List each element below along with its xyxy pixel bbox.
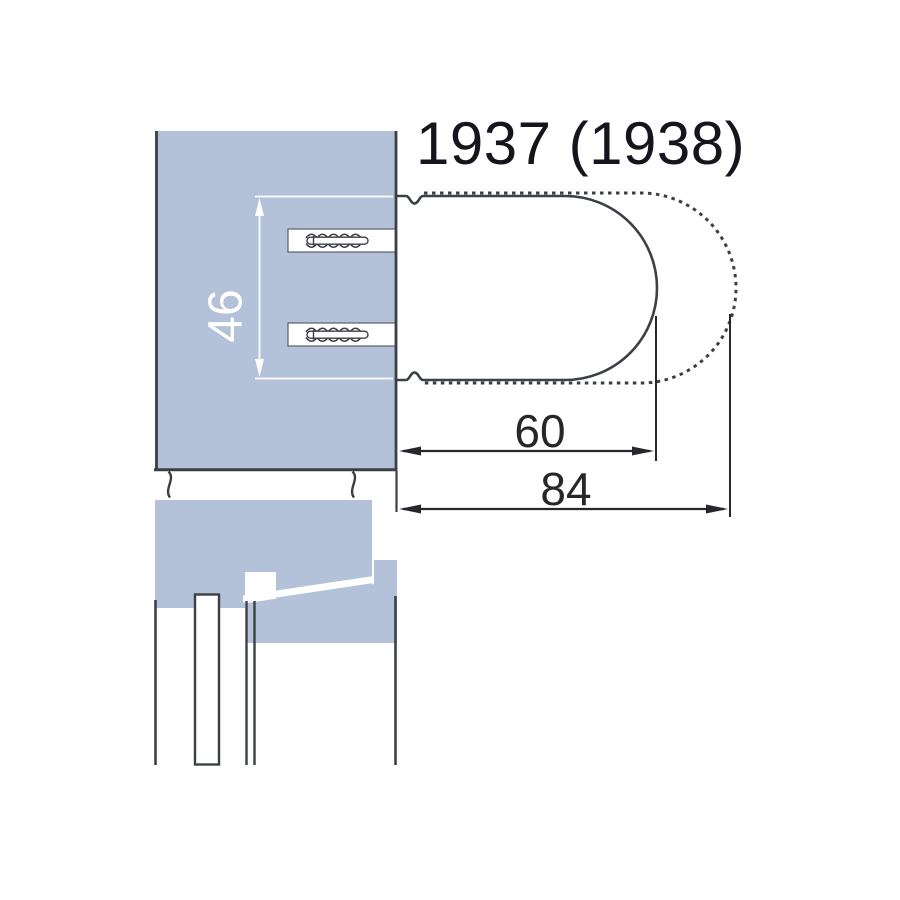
anchor-screw xyxy=(307,331,368,338)
technical-drawing-page: 1937 (1938) 60 84 46 xyxy=(0,0,900,900)
dimension-46-label-wrap: 46 xyxy=(167,256,287,376)
dimension-84-label: 84 xyxy=(540,466,591,512)
section-slot xyxy=(195,595,219,765)
dimension-60-label: 60 xyxy=(514,408,565,454)
wall-anchor-bottom xyxy=(288,323,396,346)
arrow-right-icon xyxy=(706,505,728,514)
handle-solid-outline xyxy=(397,196,658,380)
arrow-left-icon xyxy=(399,505,421,514)
break-marks xyxy=(168,472,355,498)
anchor-screw xyxy=(307,237,368,244)
product-model-title: 1937 (1938) xyxy=(416,112,745,175)
break-mark-right xyxy=(352,472,355,498)
section-body-right xyxy=(374,560,397,643)
arrow-right-icon xyxy=(632,447,654,456)
section-view xyxy=(155,500,397,765)
dimension-46-label: 46 xyxy=(203,289,251,342)
arrow-left-icon xyxy=(399,447,421,456)
break-mark-left xyxy=(168,472,171,498)
wall-anchor-top xyxy=(288,229,396,252)
